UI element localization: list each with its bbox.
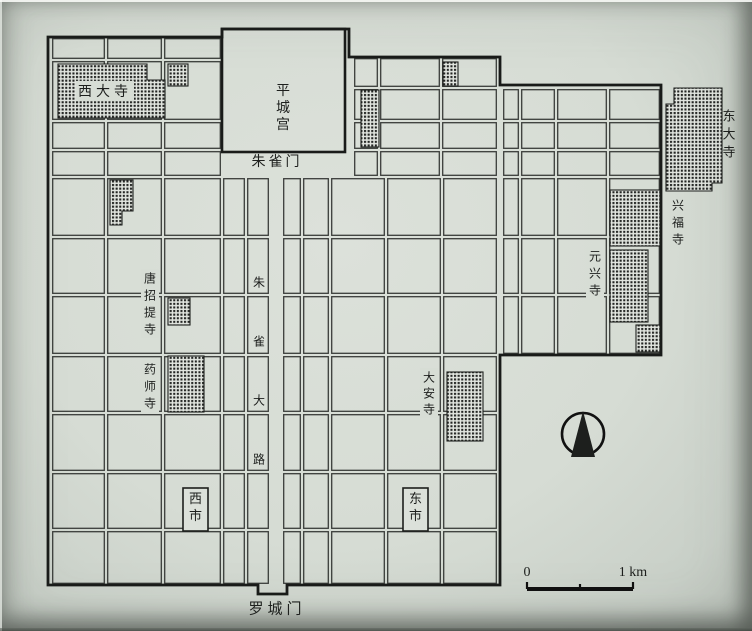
city-block-east-top [381, 90, 440, 120]
suzaku-avenue-label: 雀 [253, 334, 265, 348]
suzaku-avenue-label: 朱 [253, 275, 265, 289]
city-block-east-top [443, 90, 497, 120]
city-block-outer-capital [558, 123, 607, 149]
city-block-west-of-avenue [224, 357, 245, 412]
gangoji-label: 兴 [589, 266, 601, 280]
city-block-west-main [165, 532, 221, 584]
scale-km-label: 1 km [619, 565, 648, 580]
city-block-east-of-avenue [304, 474, 329, 529]
city-block-east-of-avenue [304, 532, 329, 584]
city-block-east-main [388, 239, 441, 294]
city-block-west-main [53, 297, 105, 354]
kofukuji-temple-block [610, 190, 660, 246]
rajomon-label: 罗城门 [248, 600, 305, 617]
city-block-east-main [332, 532, 385, 584]
city-block-west-of-avenue [248, 532, 269, 584]
heijo-palace-label: 平 [276, 84, 290, 99]
yakushiji-temple-block [168, 356, 204, 412]
suzaku-avenue-label: 路 [253, 451, 265, 466]
scale-zero-label: 0 [524, 565, 531, 580]
city-block-east-main [332, 239, 385, 294]
city-block-west-main [108, 152, 162, 176]
city-block-west-of-avenue [224, 474, 245, 529]
city-block-east-of-avenue [304, 415, 329, 471]
city-block-east-of-avenue [304, 239, 329, 294]
city-block-west-main [165, 39, 221, 59]
city-block-east-top [443, 123, 497, 149]
city-block-east-top [381, 59, 440, 87]
city-block-east-top [381, 123, 440, 149]
city-block-west-main [108, 39, 162, 59]
city-block-east-main [332, 179, 385, 236]
city-block-west-of-avenue [224, 415, 245, 471]
city-block-outer-capital [558, 179, 607, 236]
city-block-east-main [444, 239, 497, 294]
city-block-west-main [165, 239, 221, 294]
todaiji-label: 寺 [722, 145, 735, 160]
city-block-east-top [355, 152, 378, 176]
city-block-east-of-avenue [284, 532, 301, 584]
city-block-west-main [53, 123, 105, 149]
city-block-east-top [355, 59, 378, 87]
city-block-west-of-avenue [224, 179, 245, 236]
city-block-outer-capital [504, 297, 519, 354]
daianji-temple-block [447, 372, 483, 441]
saidaiji-label: 西大寺 [78, 84, 132, 100]
temple-block-nw-small [168, 64, 188, 86]
city-block-west-main [165, 152, 221, 176]
city-block-west-main [108, 532, 162, 584]
city-block-east-of-avenue [304, 179, 329, 236]
west-market-label: 市 [189, 508, 202, 523]
city-block-east-main [388, 415, 441, 471]
city-block-west-of-avenue [248, 179, 269, 236]
yakushiji-label: 寺 [144, 396, 156, 410]
city-block-west-main [53, 474, 105, 529]
heijo-palace-label: 宫 [276, 117, 290, 133]
city-block-east-main [444, 474, 497, 529]
city-block-west-of-avenue [224, 297, 245, 354]
todaiji-label: 东 [722, 109, 735, 124]
city-block-outer-capital [522, 239, 555, 294]
city-block-east-main [388, 297, 441, 354]
city-block-west-main [53, 152, 105, 176]
city-block-west-of-avenue [224, 532, 245, 584]
compass-north-needle [571, 411, 595, 457]
city-block-outer-capital [504, 123, 519, 149]
city-block-outer-capital [522, 123, 555, 149]
city-block-outer-capital [558, 152, 607, 176]
city-block-east-of-avenue [304, 297, 329, 354]
kofukuji-label: 寺 [672, 232, 684, 246]
city-block-outer-capital [610, 123, 660, 149]
todaiji-label: 大 [722, 127, 735, 142]
city-block-outer-capital [504, 90, 519, 120]
city-block-west-main [53, 357, 105, 412]
yakushiji-label: 药 [144, 362, 156, 376]
city-block-west-main [165, 415, 221, 471]
city-block-west-main [53, 179, 105, 236]
city-block-west-main [108, 123, 162, 149]
city-block-west-main [108, 474, 162, 529]
city-block-outer-capital [522, 179, 555, 236]
city-block-east-main [444, 179, 497, 236]
city-block-west-main [108, 415, 162, 471]
city-block-west-main [53, 39, 105, 59]
daianji-label: 寺 [423, 402, 435, 416]
city-block-outer-capital [504, 239, 519, 294]
city-block-west-of-avenue [248, 474, 269, 529]
city-block-outer-capital [522, 90, 555, 120]
city-block-outer-capital [504, 179, 519, 236]
city-block-east-of-avenue [284, 415, 301, 471]
city-block-east-main [332, 357, 385, 412]
map-photo-page: 西大寺平城宫朱雀门东大寺兴福寺元兴寺唐招提寺药师寺大安寺朱雀大路罗城门西市东市0… [0, 0, 752, 631]
yakushiji-label: 师 [144, 379, 156, 393]
gangoji-temple-block [610, 250, 648, 322]
city-block-east-main [444, 297, 497, 354]
daianji-label: 安 [423, 385, 435, 400]
city-block-east-main [332, 415, 385, 471]
city-block-east-main [332, 474, 385, 529]
city-block-outer-capital [522, 152, 555, 176]
city-block-east-top [381, 152, 440, 176]
gangoji-label: 元 [589, 249, 601, 263]
city-block-east-of-avenue [284, 239, 301, 294]
city-block-east-of-avenue [284, 297, 301, 354]
city-block-east-main [388, 532, 441, 584]
city-block-east-top [443, 152, 497, 176]
city-block-west-main [165, 179, 221, 236]
city-block-outer-capital [610, 152, 660, 176]
temple-strip-palace-east [361, 90, 379, 147]
city-block-outer-capital [522, 297, 555, 354]
city-block-outer-capital [504, 152, 519, 176]
east-market-label: 市 [409, 508, 422, 523]
kofukuji-label: 兴 [672, 198, 684, 212]
heijo-kyo-city-map: 西大寺平城宫朱雀门东大寺兴福寺元兴寺唐招提寺药师寺大安寺朱雀大路罗城门西市东市0… [0, 0, 752, 631]
city-block-outer-capital [558, 90, 607, 120]
temple-block-west-l [110, 180, 133, 225]
temple-block-se-small [636, 325, 660, 352]
city-block-east-main [444, 532, 497, 584]
gangoji-label: 寺 [589, 283, 601, 297]
toshodaiji-label: 唐 [144, 270, 156, 285]
city-block-west-main [53, 415, 105, 471]
city-block-west-main [53, 532, 105, 584]
east-market-label: 东 [409, 491, 422, 506]
heijo-palace-label: 城 [276, 100, 290, 116]
city-block-west-main [165, 123, 221, 149]
suzaku-avenue-label: 大 [253, 393, 265, 407]
city-block-west-of-avenue [224, 239, 245, 294]
city-block-east-of-avenue [284, 357, 301, 412]
todaiji-temple-block [666, 88, 722, 191]
city-block-east-of-avenue [284, 179, 301, 236]
city-block-outer-capital [610, 90, 660, 120]
kofukuji-label: 福 [672, 214, 684, 229]
temple-block-north-small [443, 62, 458, 86]
city-block-outer-capital [558, 297, 607, 354]
city-block-east-main [332, 297, 385, 354]
toshodaiji-temple-block [168, 298, 190, 325]
west-market-label: 西 [189, 491, 202, 506]
city-block-east-main [388, 179, 441, 236]
toshodaiji-label: 招 [144, 288, 156, 302]
toshodaiji-label: 提 [144, 304, 156, 319]
suzakumon-label: 朱雀门 [252, 154, 303, 170]
city-block-west-main [53, 239, 105, 294]
toshodaiji-label: 寺 [144, 322, 156, 336]
daianji-label: 大 [423, 370, 435, 384]
city-block-east-of-avenue [284, 474, 301, 529]
city-block-east-of-avenue [304, 357, 329, 412]
